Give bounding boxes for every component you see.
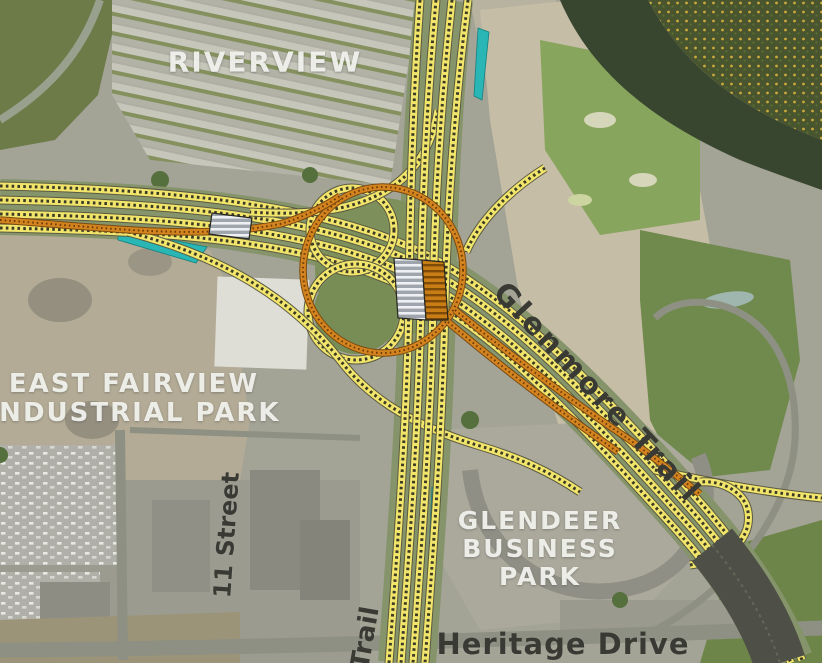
label-riverview: RIVERVIEW (168, 46, 362, 77)
car-lot-1 (0, 445, 120, 565)
tree-4 (612, 592, 628, 608)
golf-sand-2 (629, 173, 657, 187)
tree-2 (302, 167, 318, 183)
bridge-deck-gray-center (394, 258, 426, 320)
golf-sand-1 (584, 112, 616, 128)
label-glendeer: GLENDEER BUSINESS PARK (458, 507, 623, 591)
bridge-deck-orange-center (422, 260, 448, 320)
label-east-fairview-line1: EAST FAIRVIEW (0, 370, 280, 399)
label-glendeer-line3: PARK (458, 563, 623, 591)
warehouse-2 (152, 500, 210, 592)
map-canvas: RIVERVIEW EAST FAIRVIEW INDUSTRIAL PARK … (0, 0, 822, 663)
warehouse-3 (300, 520, 350, 600)
bridge-deck-gray-west (209, 213, 252, 239)
label-east-fairview: EAST FAIRVIEW INDUSTRIAL PARK (0, 370, 280, 428)
dirt-mound-1 (28, 278, 92, 322)
label-east-fairview-line2: INDUSTRIAL PARK (0, 399, 280, 428)
label-glendeer-line1: GLENDEER (458, 507, 623, 535)
road-11-street (120, 430, 123, 660)
label-glendeer-line2: BUSINESS (458, 535, 623, 563)
label-heritage-drive: Heritage Drive (436, 628, 689, 660)
tree-3 (461, 411, 479, 429)
golf-green (568, 194, 592, 206)
riverview-housing-rows (112, 0, 418, 185)
aerial-plan-image (0, 0, 822, 663)
